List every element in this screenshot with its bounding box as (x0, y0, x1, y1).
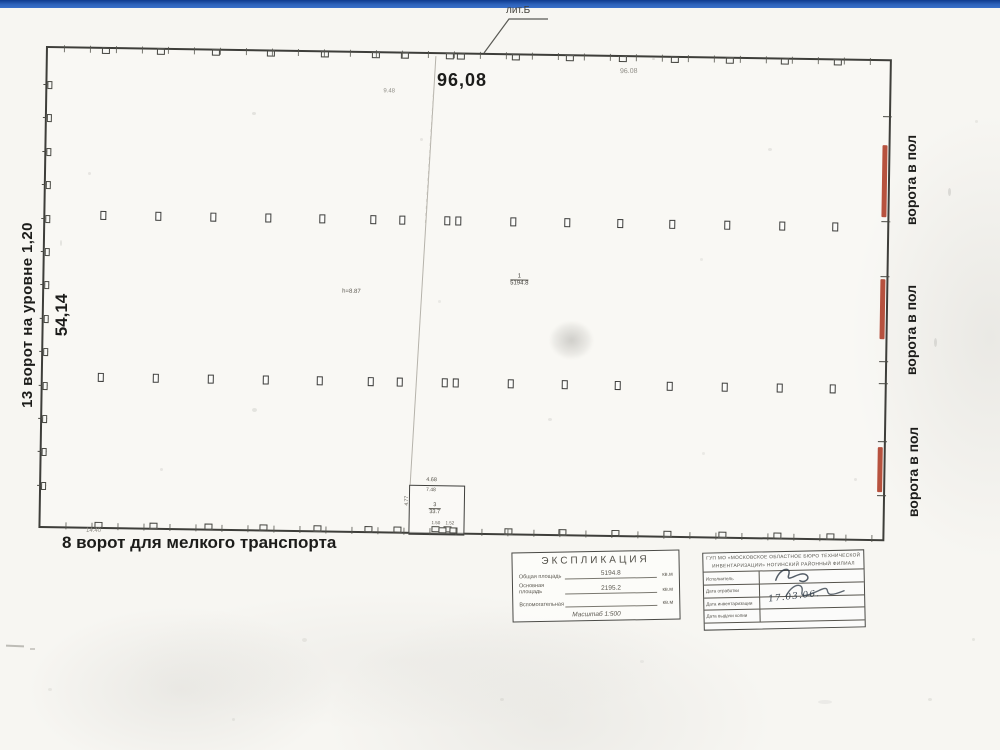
column-marker (98, 373, 104, 382)
scan-speckle (972, 638, 975, 641)
wall-tick (880, 276, 889, 277)
wall-tick (818, 57, 819, 64)
explication-row-value: 5194.8 (601, 569, 621, 576)
annex-room-number: 3 (424, 502, 446, 508)
wall-tick (584, 53, 585, 60)
scan-speckle (438, 300, 441, 303)
column-marker (265, 213, 271, 222)
column-marker (370, 215, 376, 224)
wall-tick (168, 47, 169, 54)
gate-tick (45, 248, 50, 256)
gate-tick (45, 215, 50, 223)
wall-tick (714, 55, 715, 62)
scan-speckle (934, 338, 937, 347)
floor-gate-marker (879, 279, 885, 339)
stamp-row-value (760, 570, 864, 584)
annex-room-label: 3 33.7 (424, 502, 446, 515)
column-marker (508, 379, 514, 388)
column-marker (319, 214, 325, 223)
column-marker (263, 375, 269, 384)
gate-tick (42, 415, 47, 423)
wall-tick (741, 533, 742, 540)
wall-tick (506, 52, 507, 59)
wall-tick (715, 533, 716, 540)
wall-tick (402, 51, 403, 58)
scan-speckle (702, 452, 705, 455)
gate-tick (43, 348, 48, 356)
wall-tick (272, 49, 273, 56)
label-floor-gate-1: ворота в пол (903, 115, 919, 245)
annex-dim-b1: 1.50 (432, 520, 441, 525)
wall-tick (194, 47, 195, 54)
wall-pilaster (826, 533, 834, 539)
stamp-row-value (760, 607, 864, 621)
wall-tick (507, 529, 508, 536)
scan-speckle (700, 258, 703, 261)
annex-dim-top2: 7.48 (426, 487, 436, 493)
wall-pilaster (313, 525, 321, 531)
wall-tick (429, 528, 430, 535)
label-floor-gate-3: ворота в пол (905, 407, 921, 537)
column-marker (669, 220, 675, 229)
wall-tick (558, 53, 559, 60)
annex-dim-left: 4.77 (402, 493, 412, 509)
wall-tick (273, 526, 274, 533)
column-marker (208, 375, 214, 384)
wall-tick (819, 534, 820, 541)
annex-room-area: 33.7 (424, 509, 446, 515)
wall-tick (688, 55, 689, 62)
scan-speckle (928, 698, 932, 701)
wall-pilaster (512, 54, 520, 60)
wall-tick (610, 54, 611, 61)
wall-pilaster (619, 56, 627, 62)
note-top-small: 9.48 (383, 88, 395, 94)
scan-speckle (232, 718, 235, 721)
scan-speckle (652, 58, 655, 60)
stamp-row-label: Дата инвентаризации (704, 597, 760, 610)
gate-tick (42, 448, 47, 456)
scan-smudge (541, 314, 602, 367)
wall-tick (532, 53, 533, 60)
room-area: 5194.8 (504, 280, 534, 286)
wall-tick (883, 116, 892, 117)
wall-tick (350, 50, 351, 57)
wall-pilaster (834, 59, 842, 65)
label-left-gates: 13 ворот на уровне 1,20 (18, 185, 36, 445)
scan-artifact-dash (30, 648, 35, 650)
wall-pilaster (204, 524, 212, 530)
explication-row-unit: кв.м (657, 571, 673, 577)
column-marker (617, 219, 623, 228)
explication-row-unit: кв.м (657, 599, 673, 605)
explication-row: Общая площадь 5194.8 кв.м (519, 568, 673, 580)
dimension-left: 54,14 (30, 283, 94, 347)
wall-tick (142, 47, 143, 54)
wall-tick (559, 530, 560, 537)
explication-row-label: Вспомогательная (519, 601, 565, 608)
wall-tick (220, 48, 221, 55)
wall-pilaster (259, 524, 267, 530)
column-marker (368, 377, 374, 386)
scan-speckle (975, 120, 978, 123)
wall-tick (767, 533, 768, 540)
column-marker (724, 221, 730, 230)
building-letter-label: лит.Б (506, 5, 530, 16)
scan-speckle (252, 112, 256, 115)
wall-tick (65, 522, 66, 529)
wall-tick (169, 524, 170, 531)
wall-tick (611, 531, 612, 538)
stamp-row-label: Исполнитель (704, 572, 760, 585)
wall-pilaster (726, 58, 734, 64)
column-marker (100, 211, 106, 220)
wall-pilaster (212, 50, 220, 56)
wall-tick (881, 221, 890, 222)
stamp-row-label: Дата выдачи копии (704, 610, 760, 623)
wall-tick (662, 55, 663, 62)
room-label-main: 1 5194.8 (504, 273, 534, 286)
explication-table: ЭКСПЛИКАЦИЯ Общая площадь 5194.8 кв.м Ос… (511, 550, 680, 623)
column-marker (562, 380, 568, 389)
scan-speckle (640, 660, 644, 663)
column-marker (444, 216, 450, 225)
wall-tick (636, 54, 637, 61)
wall-tick (195, 524, 196, 531)
wall-tick (877, 495, 886, 496)
gate-tick (46, 148, 51, 156)
wall-tick (298, 49, 299, 56)
wall-pilaster (671, 57, 679, 63)
dimension-bottom-small: 14.40 (86, 528, 101, 534)
column-marker (779, 222, 785, 231)
wall-pilaster (566, 55, 574, 61)
explication-title: ЭКСПЛИКАЦИЯ (518, 554, 672, 568)
column-marker (442, 378, 448, 387)
wall-tick (870, 58, 871, 65)
wall-pilaster (157, 49, 165, 55)
wall-tick (792, 57, 793, 64)
label-bottom-gates: 8 ворот для мелкого транспорта (62, 533, 336, 553)
wall-tick (793, 534, 794, 541)
column-marker (210, 213, 216, 222)
column-marker (453, 378, 459, 387)
height-note: h=8.87 (342, 289, 361, 295)
explication-row-value: 2195.2 (601, 585, 621, 592)
wall-tick (403, 528, 404, 535)
floor-gate-marker (877, 447, 883, 492)
wall-tick (324, 49, 325, 56)
wall-pilaster (611, 530, 619, 536)
stamp-row: Дата выдачи копии (704, 607, 864, 623)
wall-tick (116, 46, 117, 53)
scan-speckle (500, 698, 504, 701)
scan-speckle (854, 478, 857, 481)
wall-tick (221, 525, 222, 532)
wall-pilaster (149, 523, 157, 529)
column-marker (667, 382, 673, 391)
wall-tick (377, 527, 378, 534)
floor-plan: h=8.87 1 5194.8 9.48 4.68 7.48 4.77 3 33… (38, 46, 891, 541)
wall-tick (480, 52, 481, 59)
gate-tick (47, 114, 52, 122)
gate-tick (46, 181, 51, 189)
wall-pilaster (102, 48, 110, 54)
dimension-top-faint: 96.08 (620, 68, 638, 75)
column-marker (564, 218, 570, 227)
explication-row-label: Общая площадь (519, 573, 565, 580)
wall-tick (117, 523, 118, 530)
stamp-row-label: Дата отработки (704, 584, 760, 597)
wall-tick (455, 528, 456, 535)
column-marker (777, 384, 783, 393)
column-marker (397, 378, 403, 387)
explication-row-label: Основная площадь (519, 583, 565, 596)
wall-pilaster (781, 59, 789, 65)
floor-gate-marker (881, 145, 887, 217)
wall-pilaster (438, 527, 446, 533)
wall-tick (246, 48, 247, 55)
wall-tick (740, 56, 741, 63)
scanned-floor-plan-page: h=8.87 1 5194.8 9.48 4.68 7.48 4.77 3 33… (0, 0, 1000, 750)
wall-tick (871, 535, 872, 542)
top-blue-bar (0, 0, 1000, 8)
wall-tick (428, 51, 429, 58)
room-number: 1 (504, 273, 534, 279)
label-floor-gate-2: ворота в пол (903, 265, 919, 395)
column-marker (153, 374, 159, 383)
wall-tick (64, 45, 65, 52)
wall-pilaster (364, 526, 372, 532)
wall-tick (878, 441, 887, 442)
column-marker (722, 383, 728, 392)
wall-pilaster (773, 532, 781, 538)
scan-speckle (302, 638, 307, 642)
wall-pilaster (446, 53, 454, 59)
scan-speckle (160, 468, 163, 471)
wall-tick (585, 531, 586, 538)
wall-tick (143, 524, 144, 531)
dimension-top: 96,08 (437, 70, 487, 91)
column-marker (832, 222, 838, 231)
wall-tick (845, 535, 846, 542)
scan-speckle (252, 408, 257, 412)
wall-tick (689, 532, 690, 539)
gate-tick (43, 382, 48, 390)
wall-tick (533, 530, 534, 537)
wall-tick (299, 526, 300, 533)
wall-pilaster (718, 532, 726, 538)
scan-speckle (548, 418, 552, 421)
wall-tick (844, 58, 845, 65)
column-marker (399, 216, 405, 225)
wall-tick (766, 56, 767, 63)
explication-row: Вспомогательная кв.м (519, 596, 673, 608)
explication-row: Основная площадь 2195.2 кв.м (519, 581, 673, 596)
stamp-block: ГУП МО «МОСКОВСКОЕ ОБЛАСТНОЕ БЮРО ТЕХНИЧ… (702, 549, 866, 630)
wall-tick (879, 383, 888, 384)
wall-pilaster (393, 527, 401, 533)
gate-tick (41, 482, 46, 490)
column-marker (615, 381, 621, 390)
scan-artifact-dash (6, 645, 24, 648)
gate-tick (47, 81, 52, 89)
wall-tick (376, 50, 377, 57)
annex-dim-top: 4.68 (426, 477, 437, 483)
wall-tick (247, 525, 248, 532)
scan-speckle (88, 172, 91, 175)
wall-tick (879, 361, 888, 362)
wall-tick (351, 527, 352, 534)
wall-tick (90, 46, 91, 53)
scan-speckle (818, 700, 832, 704)
annex-dim-b2: 1.52 (446, 520, 455, 525)
column-marker (510, 217, 516, 226)
fold-line (40, 48, 889, 539)
scan-speckle (48, 688, 52, 691)
wall-pilaster (457, 53, 465, 59)
column-marker (155, 212, 161, 221)
column-marker (455, 216, 461, 225)
wall-pilaster (663, 531, 671, 537)
column-marker (830, 384, 836, 393)
scan-speckle (420, 138, 423, 141)
scan-speckle (60, 240, 62, 246)
wall-tick (481, 529, 482, 536)
scan-speckle (948, 188, 951, 196)
wall-tick (637, 531, 638, 538)
wall-tick (663, 532, 664, 539)
scan-speckle (768, 148, 772, 151)
scale-note: Масштаб 1:500 (519, 609, 673, 619)
wall-tick (454, 51, 455, 58)
explication-row-unit: кв.м (657, 587, 673, 593)
column-marker (317, 376, 323, 385)
